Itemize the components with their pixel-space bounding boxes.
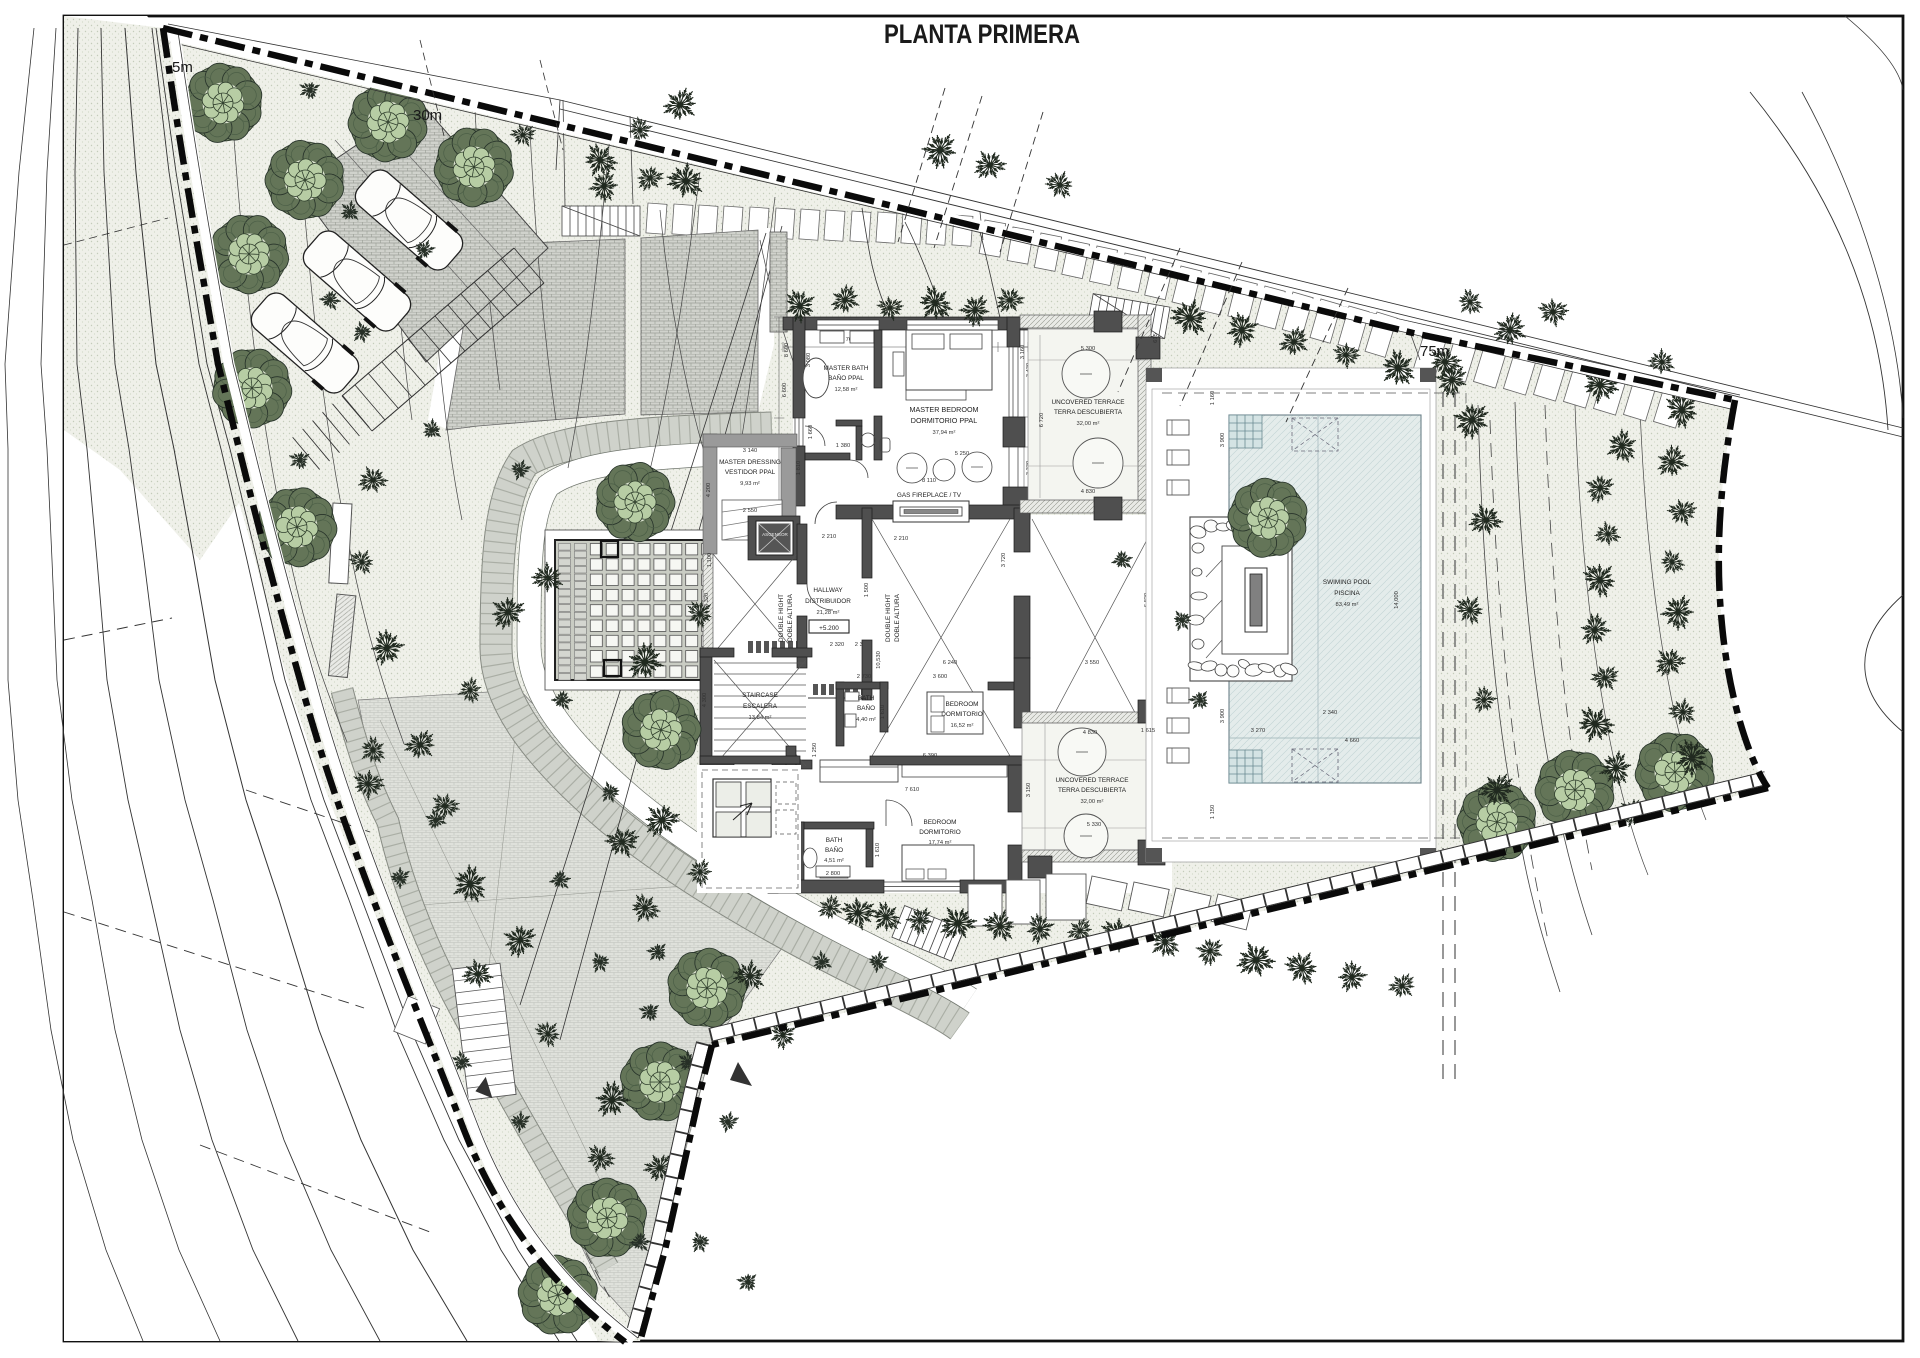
svg-text:32,00 m²: 32,00 m² xyxy=(1077,421,1100,427)
svg-text:MASTER BATH: MASTER BATH xyxy=(824,365,869,372)
svg-text:17,74 m²: 17,74 m² xyxy=(929,840,952,846)
svg-text:30m: 30m xyxy=(413,107,442,124)
svg-text:PLANTA PRIMERA: PLANTA PRIMERA xyxy=(884,19,1080,49)
svg-text:1 610: 1 610 xyxy=(880,705,886,720)
svg-text:13,84 m²: 13,84 m² xyxy=(749,715,772,721)
svg-text:DOBLE ALTURA: DOBLE ALTURA xyxy=(787,593,794,642)
svg-text:UNCOVERED TERRACE: UNCOVERED TERRACE xyxy=(1051,399,1124,406)
svg-text:37,94 m²: 37,94 m² xyxy=(933,430,956,436)
svg-text:BEDROOM: BEDROOM xyxy=(945,701,978,708)
svg-text:MASTER BEDROOM: MASTER BEDROOM xyxy=(909,405,978,414)
svg-text:4 200: 4 200 xyxy=(706,483,712,498)
svg-text:16,52 m²: 16,52 m² xyxy=(951,723,974,729)
svg-text:UNCOVERED TERRACE: UNCOVERED TERRACE xyxy=(1055,777,1128,784)
svg-text:9,93 m²: 9,93 m² xyxy=(740,481,760,487)
svg-text:1 250: 1 250 xyxy=(812,743,818,758)
svg-text:2 320: 2 320 xyxy=(830,642,845,648)
svg-text:BEDROOM: BEDROOM xyxy=(923,819,956,826)
svg-text:DOUBLE HIGHT: DOUBLE HIGHT xyxy=(778,594,785,642)
svg-text:ESCALERA: ESCALERA xyxy=(743,703,778,710)
svg-text:4 300: 4 300 xyxy=(702,693,708,708)
svg-text:2 730: 2 730 xyxy=(857,674,872,680)
svg-text:DORMITORIO PPAL: DORMITORIO PPAL xyxy=(911,416,977,425)
svg-text:GAS FIREPLACE / TV: GAS FIREPLACE / TV xyxy=(897,492,962,499)
svg-text:2 550: 2 550 xyxy=(743,508,758,514)
svg-text:6 240: 6 240 xyxy=(943,660,958,666)
svg-text:10,530: 10,530 xyxy=(876,651,882,669)
svg-text:4 830: 4 830 xyxy=(1081,489,1096,495)
svg-text:8 110: 8 110 xyxy=(922,478,936,484)
svg-text:5m: 5m xyxy=(172,59,193,76)
svg-text:1 610: 1 610 xyxy=(875,843,881,858)
svg-text:83,49 m²: 83,49 m² xyxy=(1336,602,1359,608)
svg-text:2 210: 2 210 xyxy=(894,536,909,542)
svg-text:BAÑO PPAL: BAÑO PPAL xyxy=(828,373,864,382)
svg-text:TERRA DESCUBIERTA: TERRA DESCUBIERTA xyxy=(1054,409,1123,416)
svg-text:3 270: 3 270 xyxy=(1251,728,1266,734)
svg-text:1 500: 1 500 xyxy=(864,583,870,598)
svg-text:6 720: 6 720 xyxy=(1039,413,1045,428)
svg-text:4 830: 4 830 xyxy=(1083,730,1098,736)
svg-text:3 600: 3 600 xyxy=(933,674,948,680)
svg-text:3 550: 3 550 xyxy=(1085,660,1100,666)
svg-text:MASTER DRESSING: MASTER DRESSING xyxy=(719,459,781,466)
svg-text:ASCENSOR: ASCENSOR xyxy=(762,532,788,537)
svg-text:21,28 m²: 21,28 m² xyxy=(817,610,840,616)
svg-text:3 150: 3 150 xyxy=(1026,783,1032,798)
svg-text:DOUBLE HIGHT: DOUBLE HIGHT xyxy=(885,594,892,642)
svg-text:12,58 m²: 12,58 m² xyxy=(835,387,858,393)
svg-text:SWIMING POOL: SWIMING POOL xyxy=(1323,579,1372,586)
svg-text:DORMITORIO: DORMITORIO xyxy=(919,829,960,836)
svg-text:2 340: 2 340 xyxy=(1323,710,1338,716)
svg-text:BATH: BATH xyxy=(826,837,843,844)
svg-text:14,000: 14,000 xyxy=(1394,591,1400,609)
svg-text:1,100: 1,100 xyxy=(707,553,713,568)
svg-text:75m: 75m xyxy=(1420,343,1449,360)
svg-text:3 900: 3 900 xyxy=(1220,709,1226,724)
svg-text:6 600: 6 600 xyxy=(782,383,788,398)
svg-text:615: 615 xyxy=(1153,333,1159,343)
svg-text:BAÑO: BAÑO xyxy=(825,845,843,854)
svg-text:DORMITORIO: DORMITORIO xyxy=(941,711,982,718)
svg-text:1 810: 1 810 xyxy=(796,461,802,476)
svg-text:TERRA DESCUBIERTA: TERRA DESCUBIERTA xyxy=(1058,787,1127,794)
svg-text:BATH: BATH xyxy=(858,695,875,702)
svg-text:PISCINA: PISCINA xyxy=(1334,590,1360,597)
svg-text:1 150: 1 150 xyxy=(1210,805,1216,820)
svg-text:HALLWAY: HALLWAY xyxy=(813,587,843,594)
svg-text:32,00 m²: 32,00 m² xyxy=(1081,799,1104,805)
svg-text:2 800: 2 800 xyxy=(826,871,841,877)
svg-text:4,51 m²: 4,51 m² xyxy=(824,858,844,864)
svg-text:3 080: 3 080 xyxy=(806,353,812,368)
svg-text:VESTIDOR PPAL: VESTIDOR PPAL xyxy=(725,469,776,476)
svg-text:7 610: 7 610 xyxy=(905,787,920,793)
svg-text:3 160: 3 160 xyxy=(1020,345,1026,360)
svg-text:+5.200: +5.200 xyxy=(819,625,839,632)
svg-text:3 720: 3 720 xyxy=(1001,553,1007,568)
svg-text:4 660: 4 660 xyxy=(1345,738,1360,744)
svg-text:5 330: 5 330 xyxy=(1087,822,1102,828)
svg-text:3 900: 3 900 xyxy=(1220,433,1226,448)
svg-text:STAIRCASE: STAIRCASE xyxy=(742,692,778,699)
svg-text:8 600: 8 600 xyxy=(784,343,790,358)
svg-text:1 380: 1 380 xyxy=(836,443,851,449)
svg-text:1 660: 1 660 xyxy=(808,425,814,440)
svg-text:5 300: 5 300 xyxy=(1081,346,1096,352)
svg-text:3 320: 3 320 xyxy=(704,593,710,608)
svg-text:DOBLE ALTURA: DOBLE ALTURA xyxy=(894,593,901,642)
svg-text:1 615: 1 615 xyxy=(1141,728,1156,734)
svg-text:3 140: 3 140 xyxy=(743,448,758,454)
svg-text:BAÑO: BAÑO xyxy=(857,703,875,712)
svg-text:4,40 m²: 4,40 m² xyxy=(856,717,876,723)
svg-text:2 210: 2 210 xyxy=(822,534,837,540)
